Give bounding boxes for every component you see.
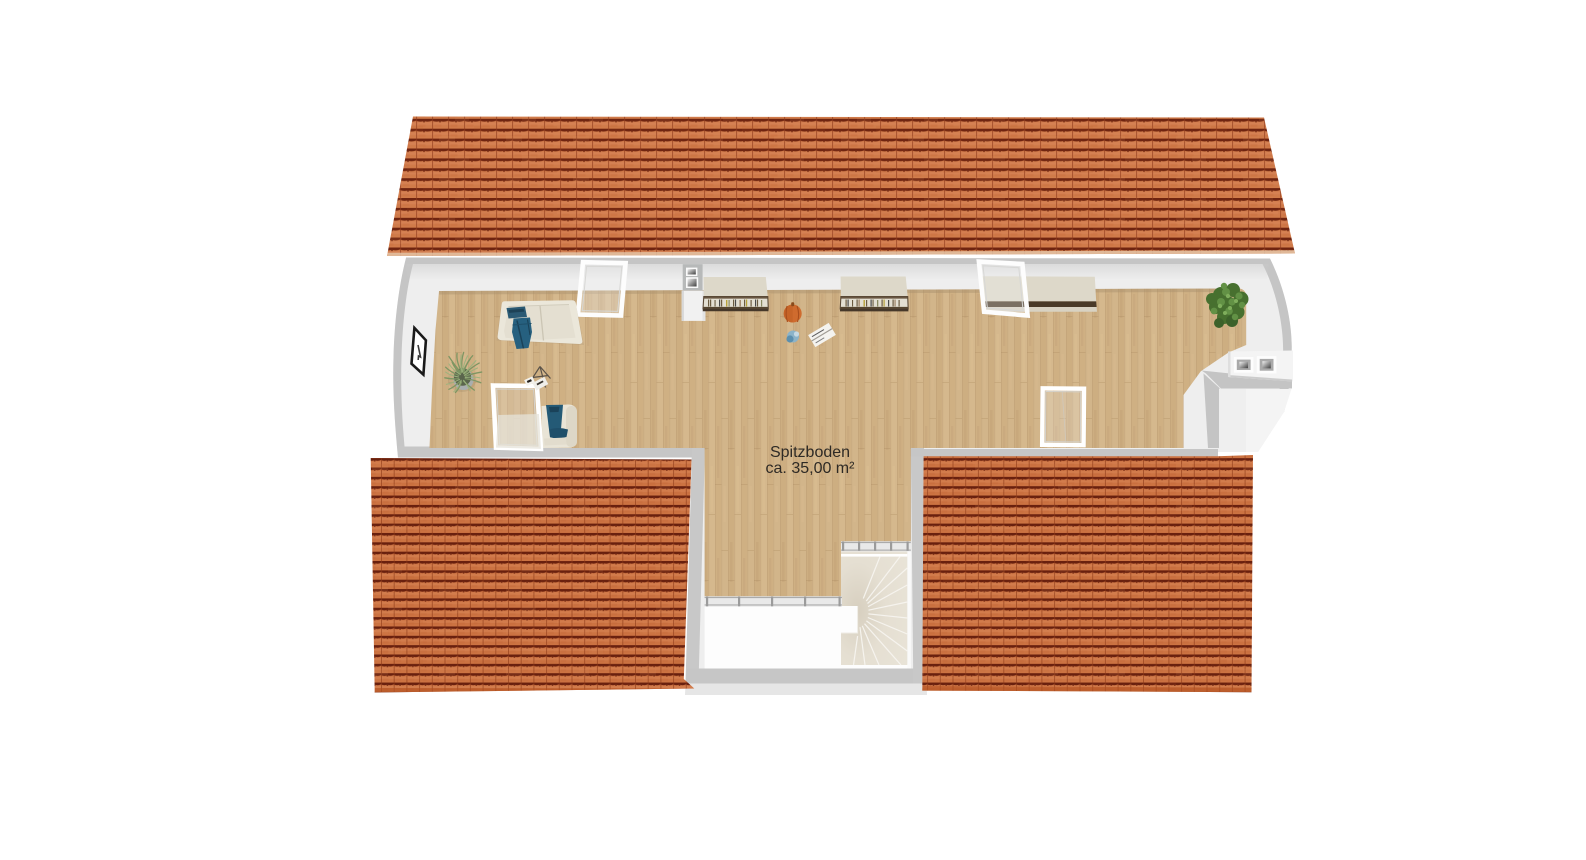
svg-text:Spitzboden: Spitzboden — [770, 444, 850, 461]
svg-text:ca. 35,00 m²: ca. 35,00 m² — [766, 460, 856, 477]
